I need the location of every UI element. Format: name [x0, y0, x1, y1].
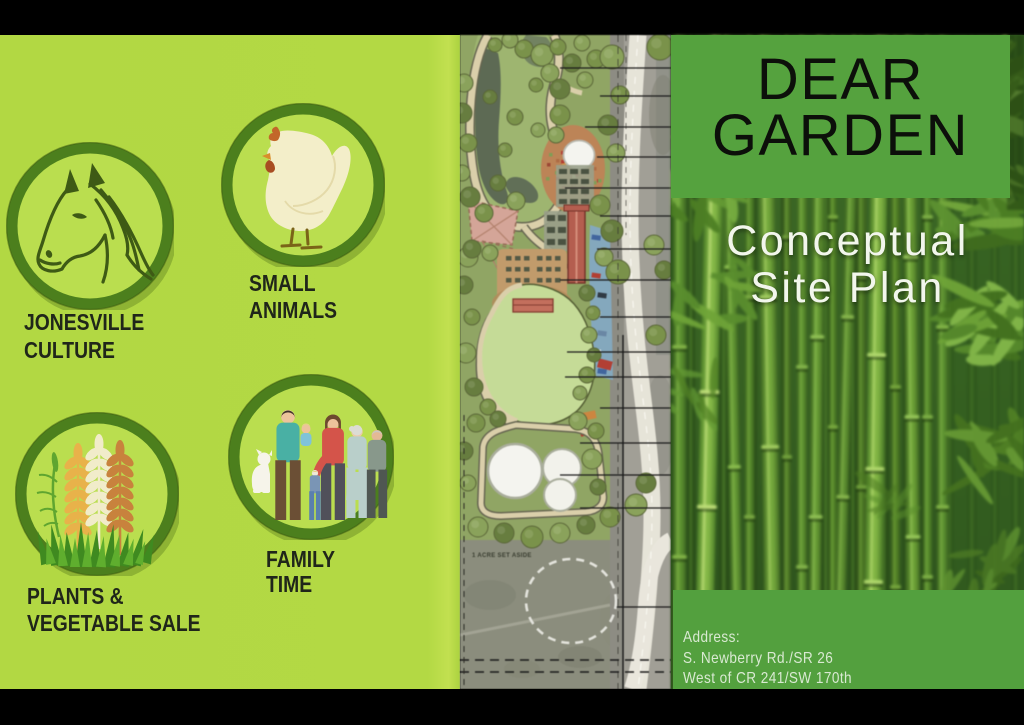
- svg-text:1 ACRE SET ASIDE: 1 ACRE SET ASIDE: [472, 553, 532, 559]
